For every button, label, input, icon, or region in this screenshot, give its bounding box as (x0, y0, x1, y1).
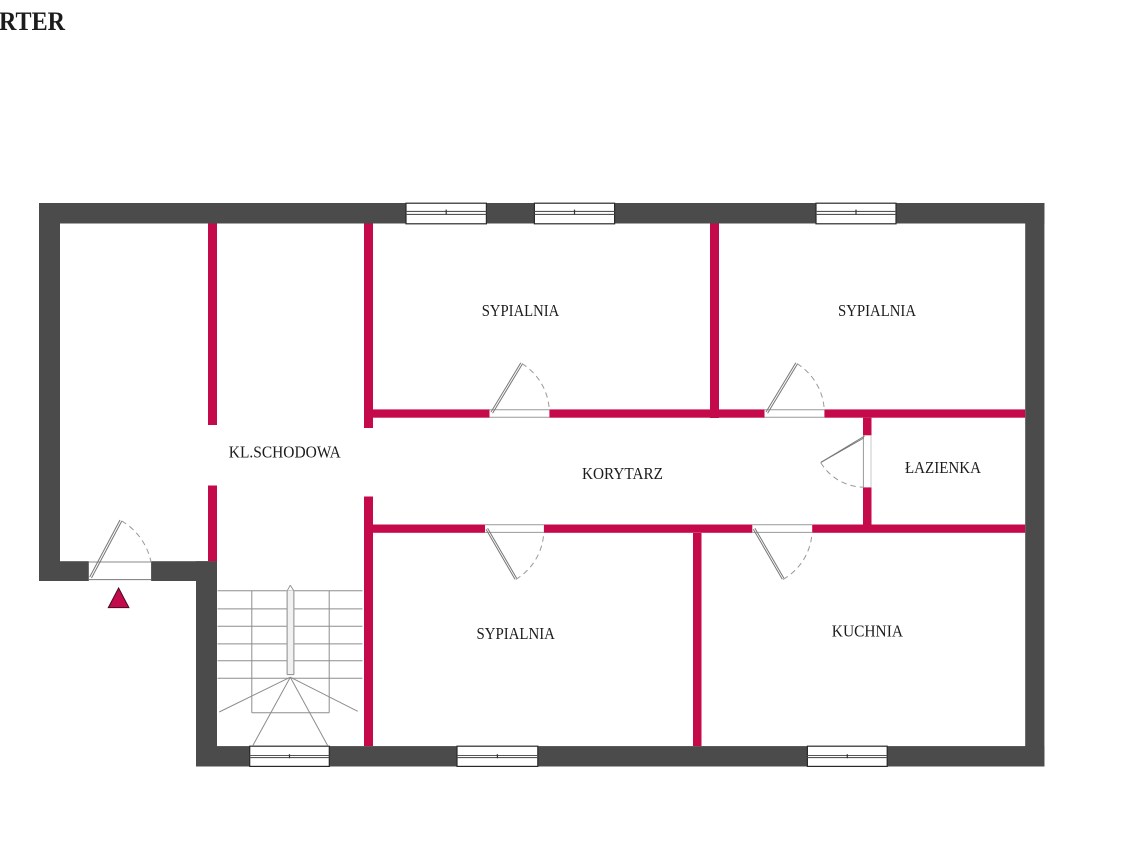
svg-text:SYPIALNIA: SYPIALNIA (482, 301, 560, 320)
svg-text:SYPIALNIA: SYPIALNIA (838, 301, 916, 320)
svg-text:RTER: RTER (0, 7, 65, 36)
svg-text:KUCHNIA: KUCHNIA (832, 621, 903, 640)
svg-text:KORYTARZ: KORYTARZ (582, 464, 663, 483)
svg-text:ŁAZIENKA: ŁAZIENKA (905, 458, 981, 477)
svg-text:KL.SCHODOWA: KL.SCHODOWA (229, 443, 341, 462)
svg-text:SYPIALNIA: SYPIALNIA (477, 624, 555, 643)
